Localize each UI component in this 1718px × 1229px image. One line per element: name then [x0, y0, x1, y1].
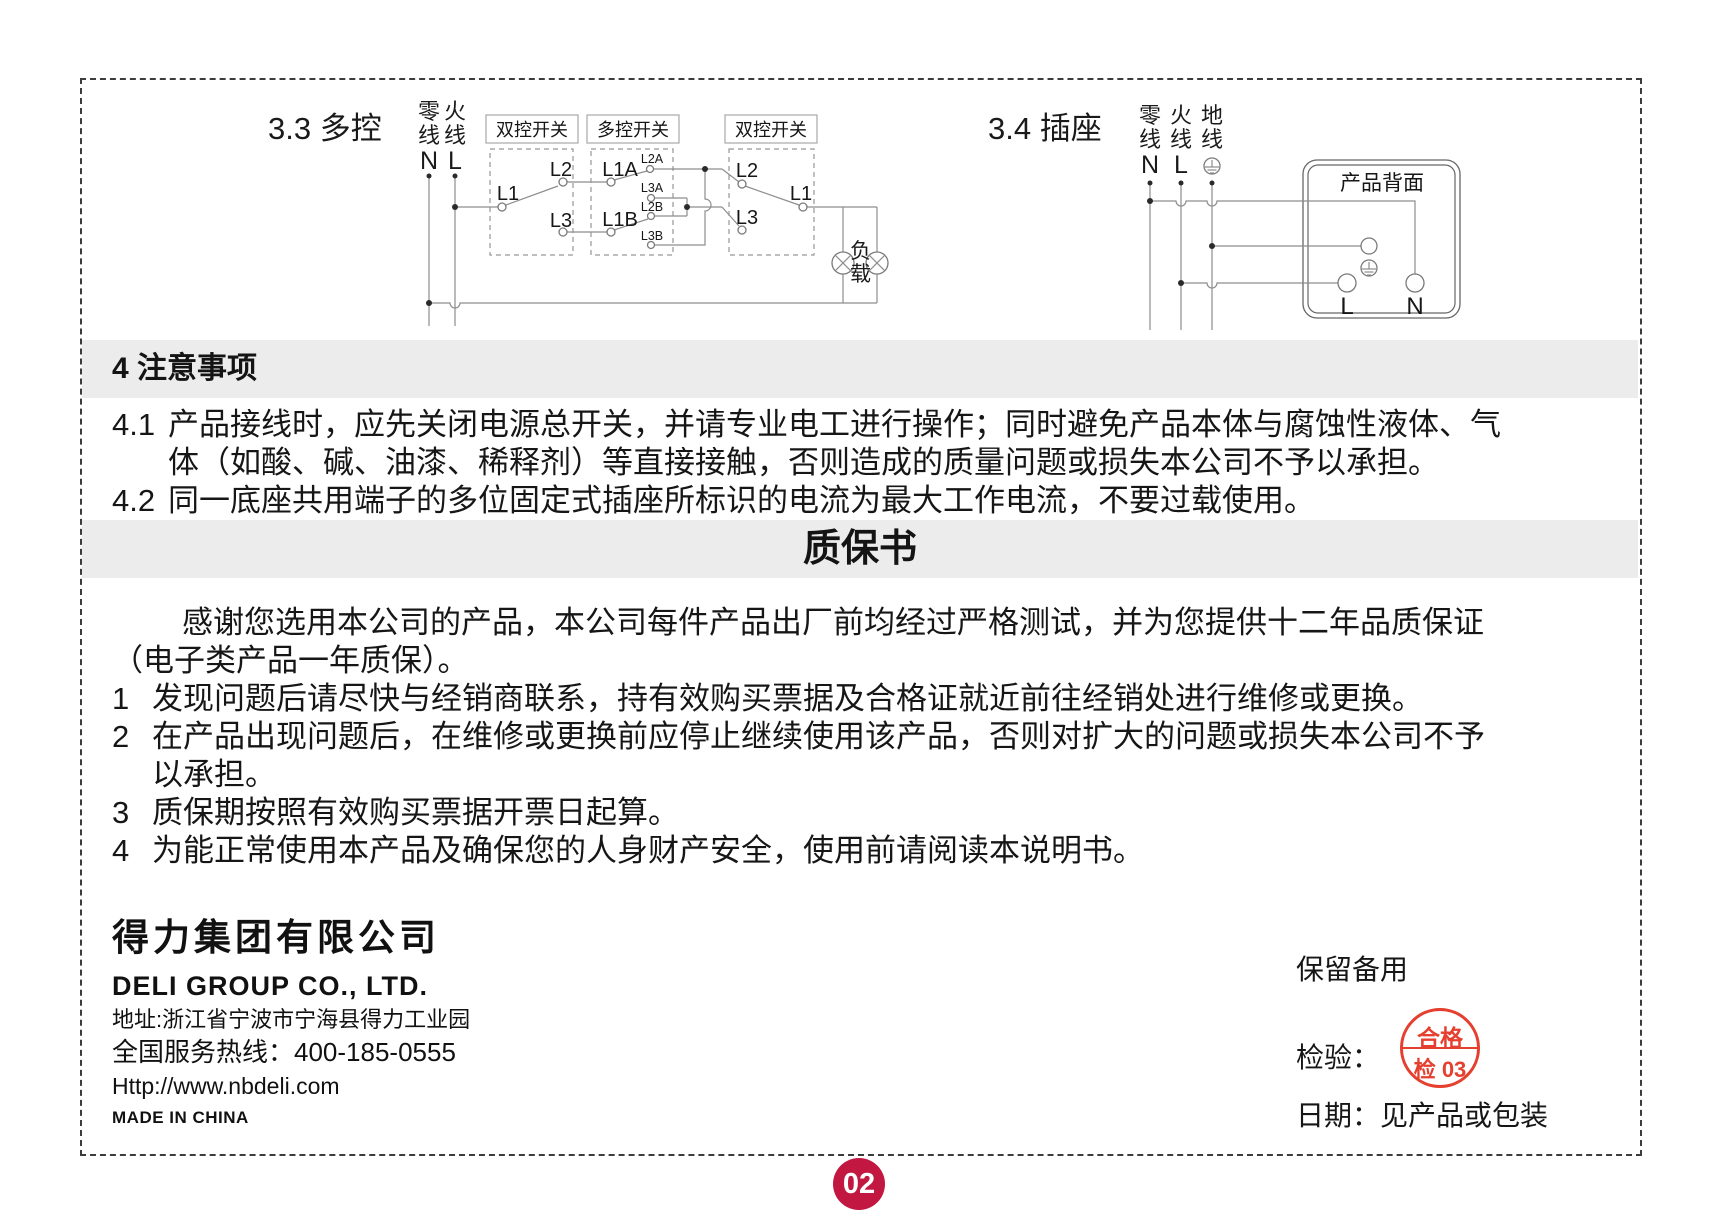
warranty-item-line: 发现问题后请尽快与经销商联系，持有效购买票据及合格证就近前往经销处进行维修或更换… [152, 680, 1485, 718]
service-hotline-number: 400-185-0555 [294, 1037, 456, 1067]
service-hotline: 全国服务热线：400-185-0555 [112, 1037, 470, 1068]
sw3-terminal-l1-label: L1 [790, 183, 812, 205]
stamp-bottom-text: 检 03 [1403, 1052, 1477, 1084]
precaution-item-number: 4.2 [112, 482, 155, 520]
earth-ground-icon [1204, 158, 1220, 174]
sw2-terminal-l1b-label: L1B [602, 209, 638, 231]
date-row: 日期：见产品或包装 [1296, 1094, 1548, 1134]
warranty-item-line: 以承担。 [152, 756, 1485, 794]
earth-ground-icon [1361, 260, 1377, 276]
inspection-label: 检验： [1296, 1036, 1380, 1076]
warranty-heading: 质保书 [82, 520, 1638, 578]
precaution-item-line: 产品接线时，应先关闭电源总开关，并请专业电工进行操作；同时避免产品本体与腐蚀性液… [168, 406, 1501, 444]
precautions-heading: 4 注意事项 [82, 340, 1638, 398]
warranty-intro: 感谢您选用本公司的产品，本公司每件产品出厂前均经过严格测试，并为您提供十二年品质… [112, 604, 1485, 680]
warranty-text: 感谢您选用本公司的产品，本公司每件产品出厂前均经过严格测试，并为您提供十二年品质… [112, 604, 1485, 870]
precaution-item-number: 4.1 [112, 406, 155, 444]
approval-stamp: 合格 检 03 [1400, 1008, 1480, 1088]
precaution-item-line: 体（如酸、碱、油漆、稀释剂）等直接接触，否则造成的质量问题或损失本公司不予以承担… [168, 444, 1501, 482]
warranty-item-number: 2 [112, 718, 129, 756]
warranty-item: 3 质保期按照有效购买票据开票日起算。 [112, 794, 1485, 832]
warranty-item-number: 1 [112, 680, 129, 718]
load-label: 负载 [849, 240, 872, 286]
socket-terminal-n-label: N [1406, 293, 1423, 320]
section-3-4-title: 3.4 插座 [988, 103, 1102, 148]
company-name-cn: 得力集团有限公司 [112, 916, 470, 960]
warranty-item: 2 在产品出现问题后，在维修或更换前应停止继续使用该产品，否则对扩大的问题或损失… [112, 718, 1485, 794]
sw1-terminal-l1-label: L1 [497, 183, 519, 205]
warranty-item-line: 在产品出现问题后，在维修或更换前应停止继续使用该产品，否则对扩大的问题或损失本公… [152, 718, 1485, 756]
precaution-item-line: 同一底座共用端子的多位固定式插座所标识的电流为最大工作电流，不要过载使用。 [168, 482, 1501, 520]
switch2-title: 多控开关 [597, 120, 669, 140]
socket-wiring-svg: 产品背面 L N [1130, 150, 1480, 335]
precautions-text: 4.1 产品接线时，应先关闭电源总开关，并请专业电工进行操作；同时避免产品本体与… [112, 406, 1501, 520]
warranty-item: 4 为能正常使用本产品及确保您的人身财产安全，使用前请阅读本说明书。 [112, 832, 1485, 870]
sw2-terminal-l1a-label: L1A [602, 159, 638, 181]
service-hotline-label: 全国服务热线： [112, 1037, 294, 1067]
sw1-terminal-l3-label: L3 [550, 210, 572, 232]
warranty-item-line: 为能正常使用本产品及确保您的人身财产安全，使用前请阅读本说明书。 [152, 832, 1485, 870]
precautions-band: 4 注意事项 [82, 340, 1638, 398]
warranty-intro-line: （电子类产品一年质保）。 [112, 642, 1485, 680]
company-website: Http://www.nbdeli.com [112, 1073, 470, 1100]
company-name-en: DELI GROUP CO., LTD. [112, 970, 470, 1002]
sw1-terminal-l2-label: L2 [550, 159, 572, 181]
warranty-intro-line: 感谢您选用本公司的产品，本公司每件产品出厂前均经过严格测试，并为您提供十二年品质… [112, 604, 1485, 642]
section-3-3-title: 3.3 多控 [268, 103, 382, 148]
socket-terminal-l-label: L [1340, 293, 1353, 320]
switch1-title: 双控开关 [496, 120, 568, 140]
warranty-item-line: 质保期按照有效购买票据开票日起算。 [152, 794, 1485, 832]
company-address: 地址:浙江省宁波市宁海县得力工业园 [112, 1006, 470, 1033]
sw3-terminal-l2-label: L2 [736, 160, 758, 182]
sw2-terminal-l2a-label: L2A [641, 152, 664, 166]
multi-control-wiring-svg: 双控开关 L1 L2 L3 多控开关 L1A L1B L2A L3 [420, 90, 900, 335]
panel-title: 产品背面 [1340, 172, 1424, 195]
stamp-divider [1402, 1047, 1478, 1049]
warranty-band: 质保书 [82, 520, 1638, 578]
earth-wire-label: 地线 [1199, 104, 1225, 152]
sw2-terminal-l3b-label: L3B [641, 229, 663, 243]
warranty-item: 1 发现问题后请尽快与经销商联系，持有效购买票据及合格证就近前往经销处进行维修或… [112, 680, 1485, 718]
sw2-terminal-l2b-label: L2B [641, 200, 663, 214]
reserve-note: 保留备用 [1296, 948, 1408, 988]
warranty-item-number: 3 [112, 794, 129, 832]
page-number-badge: 02 [833, 1158, 885, 1210]
warranty-item-number: 4 [112, 832, 129, 870]
date-value: 见产品或包装 [1380, 1100, 1548, 1131]
made-in-china: MADE IN CHINA [112, 1107, 470, 1128]
instruction-manual-page: 3.3 多控 零线 N 火线 L 双控开关 L1 L2 L3 多控开关 [0, 0, 1718, 1229]
date-label: 日期： [1296, 1100, 1380, 1131]
sw2-terminal-l3a-label: L3A [641, 181, 664, 195]
switch3-title: 双控开关 [735, 120, 807, 140]
precaution-item: 4.2 同一底座共用端子的多位固定式插座所标识的电流为最大工作电流，不要过载使用… [112, 482, 1501, 520]
company-block: 得力集团有限公司 DELI GROUP CO., LTD. 地址:浙江省宁波市宁… [112, 916, 470, 1128]
sw3-terminal-l3-label: L3 [736, 207, 758, 229]
precaution-item: 4.1 产品接线时，应先关闭电源总开关，并请专业电工进行操作；同时避免产品本体与… [112, 406, 1501, 482]
